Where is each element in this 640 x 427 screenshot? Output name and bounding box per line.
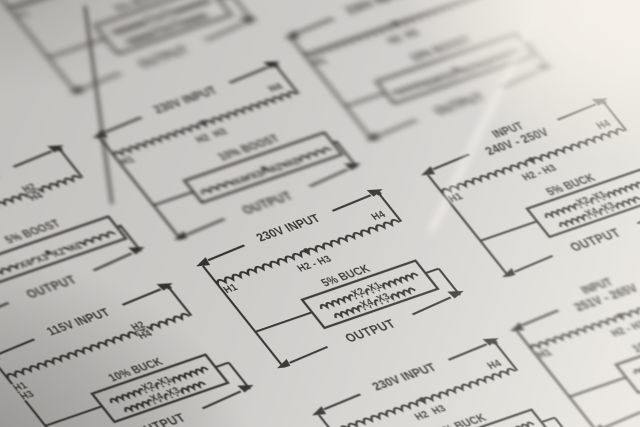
photo-of-wiring-diagram-page: 230V INPUT H1 H2 - H3 H4 5% BUCK X2 X1 X…	[0, 0, 640, 427]
diagram-right-240v-250v-buck: INPUT 240V - 250V H1 H2 - H3 H4 5% BUCK …	[408, 94, 640, 280]
